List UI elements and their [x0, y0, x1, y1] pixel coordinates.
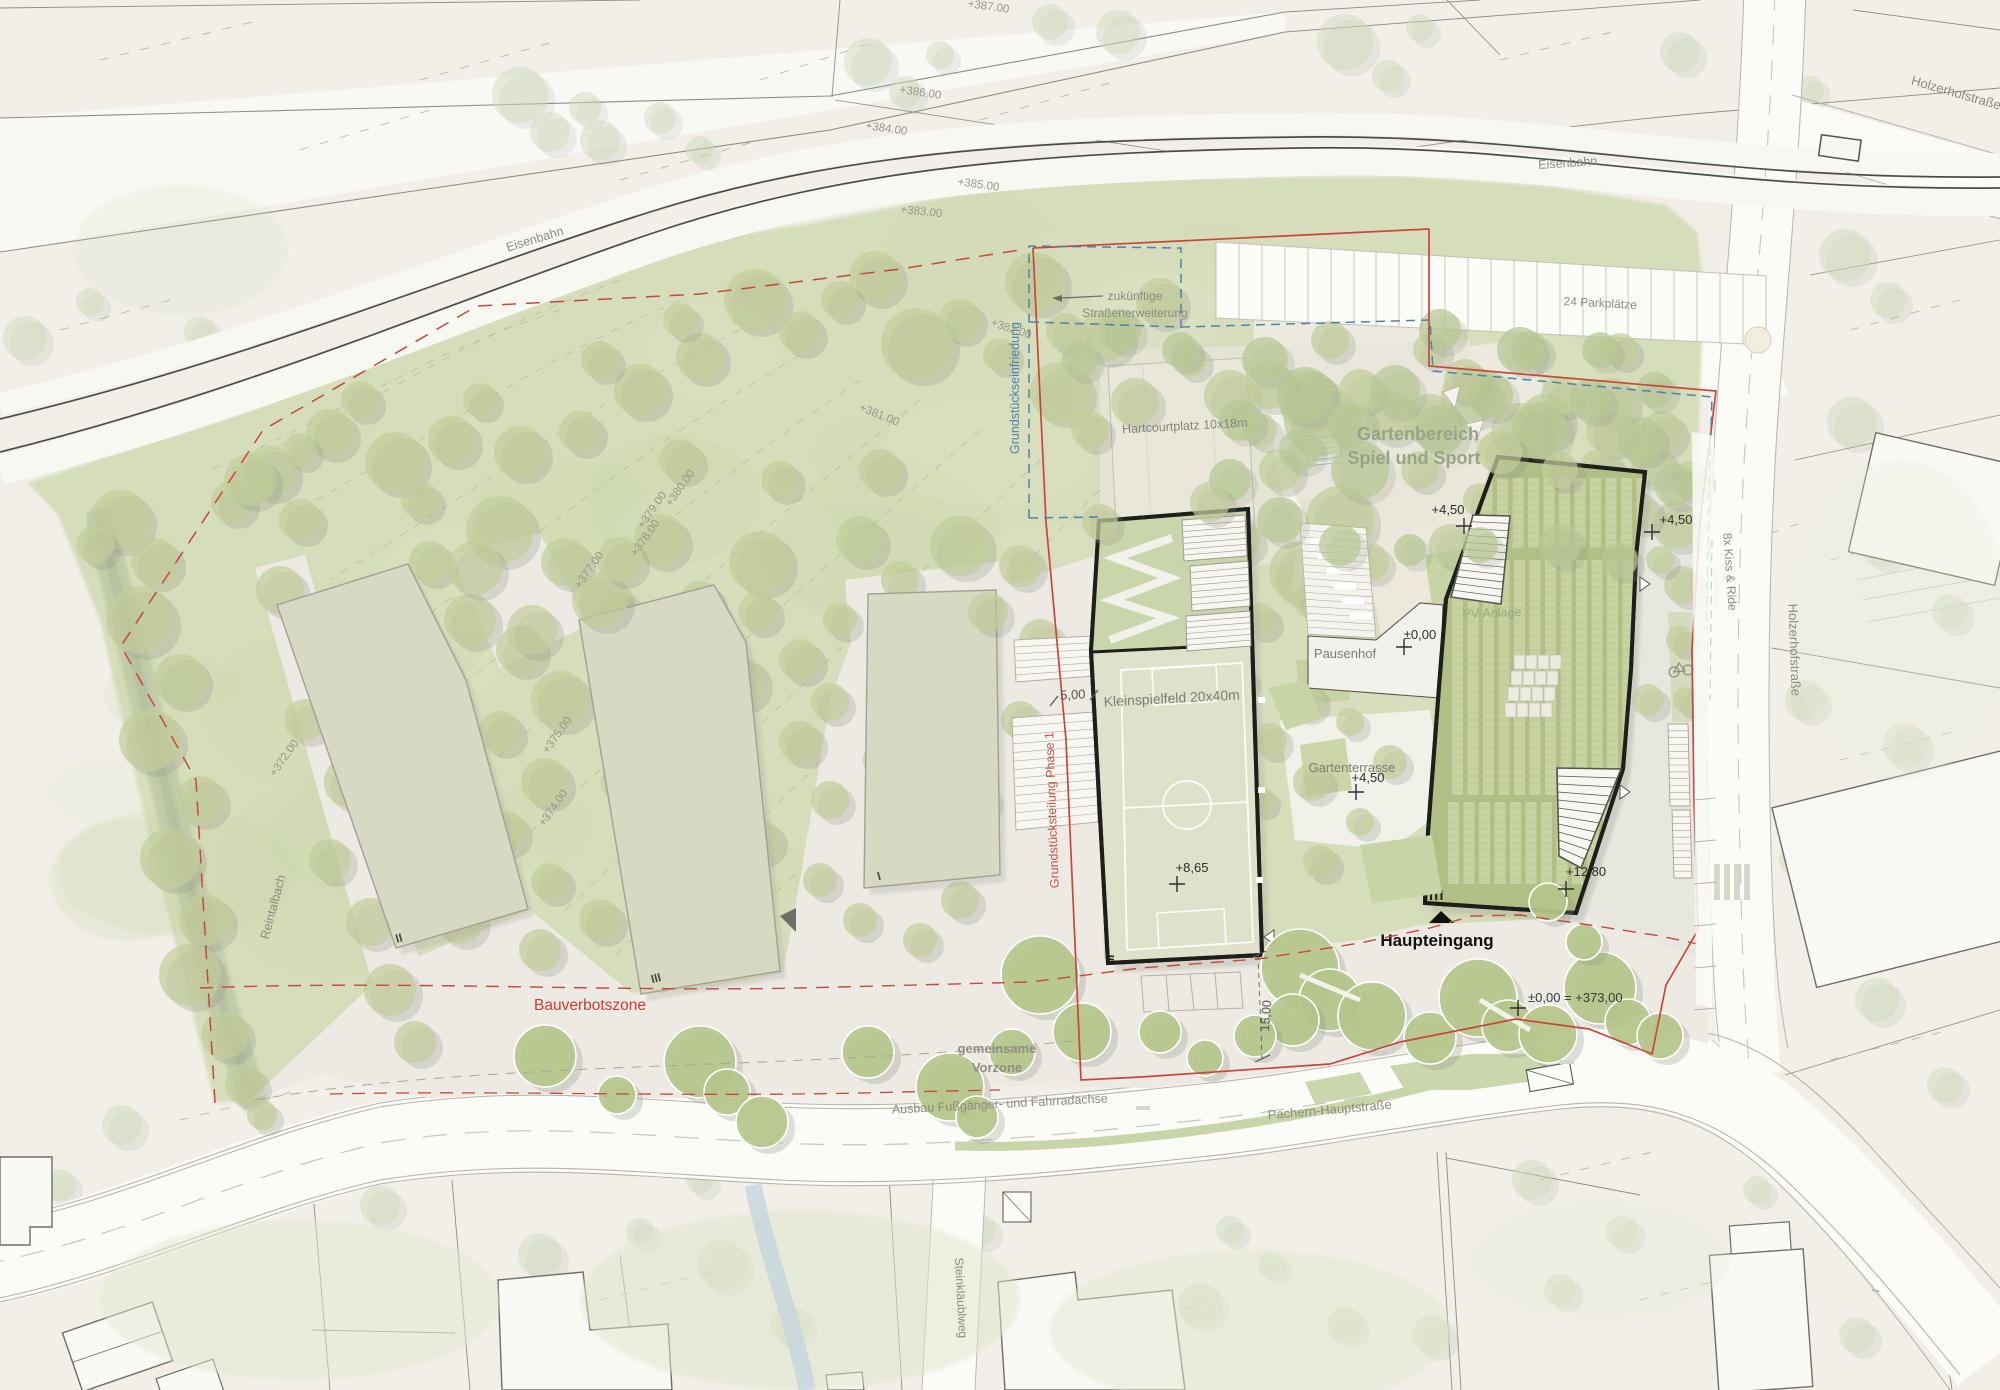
svg-text:+8,65: +8,65	[1176, 860, 1209, 875]
svg-text:II: II	[1105, 954, 1117, 961]
svg-text:gemeinsame: gemeinsame	[958, 1041, 1037, 1056]
svg-text:±0,00 = +373,00: ±0,00 = +373,00	[1528, 990, 1623, 1005]
svg-text:Pausenhof: Pausenhof	[1314, 646, 1377, 661]
svg-text:Gartenbereich: Gartenbereich	[1357, 424, 1479, 444]
svg-text:Haupteingang: Haupteingang	[1380, 931, 1493, 950]
svg-text:5,00: 5,00	[1060, 686, 1086, 702]
svg-text:+12,80: +12,80	[1566, 864, 1606, 879]
svg-text:15,00: 15,00	[1258, 1000, 1274, 1032]
svg-text:Spiel und Sport: Spiel und Sport	[1348, 448, 1481, 468]
svg-text:PV-Anlage: PV-Anlage	[1462, 605, 1522, 621]
svg-text:+4,50: +4,50	[1352, 770, 1385, 785]
svg-text:Vorzone: Vorzone	[972, 1060, 1022, 1075]
svg-text:Straßenerweiterung: Straßenerweiterung	[1082, 306, 1187, 320]
svg-text:+4,50: +4,50	[1660, 512, 1693, 527]
svg-text:Grundstückseinfriedung: Grundstückseinfriedung	[1008, 322, 1022, 454]
svg-text:±0,00: ±0,00	[1404, 627, 1436, 642]
svg-text:+4,50: +4,50	[1432, 502, 1465, 517]
svg-text:Bauverbotszone: Bauverbotszone	[534, 997, 646, 1014]
svg-text:zukünftige: zukünftige	[1108, 289, 1163, 303]
